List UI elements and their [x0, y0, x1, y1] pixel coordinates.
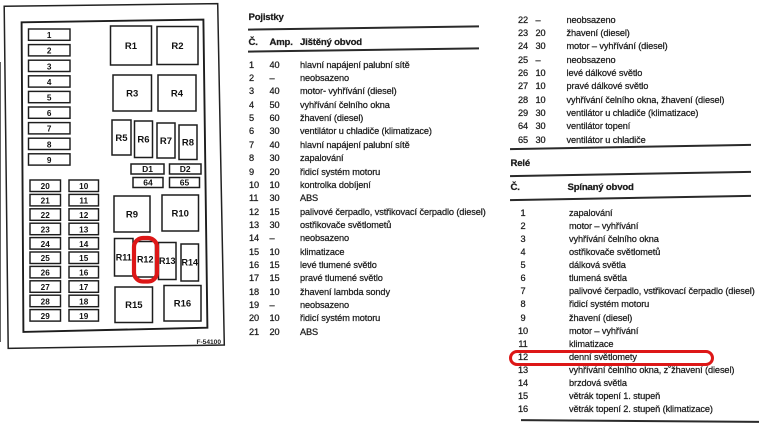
svg-text:23: 23	[41, 225, 51, 234]
svg-text:R10: R10	[171, 208, 188, 219]
svg-text:R14: R14	[182, 258, 199, 268]
svg-text:D1: D1	[142, 164, 153, 174]
svg-text:22: 22	[41, 211, 51, 220]
svg-text:27: 27	[41, 283, 51, 292]
svg-text:F-54100: F-54100	[196, 339, 221, 346]
svg-text:29: 29	[41, 312, 51, 321]
svg-text:7: 7	[47, 125, 52, 134]
svg-text:11: 11	[79, 197, 88, 206]
svg-text:3: 3	[47, 62, 52, 71]
svg-text:R2: R2	[171, 41, 183, 52]
svg-text:18: 18	[79, 297, 89, 306]
svg-text:8: 8	[47, 140, 52, 149]
svg-text:R8: R8	[182, 138, 194, 149]
svg-text:26: 26	[41, 269, 51, 278]
svg-text:R15: R15	[125, 300, 143, 311]
svg-text:28: 28	[41, 297, 51, 306]
svg-text:R7: R7	[160, 136, 172, 147]
svg-text:13: 13	[79, 225, 89, 234]
svg-text:4: 4	[47, 78, 52, 87]
svg-text:R4: R4	[171, 88, 184, 99]
svg-text:20: 20	[41, 182, 51, 191]
svg-text:25: 25	[41, 254, 51, 263]
svg-text:9: 9	[47, 156, 52, 165]
svg-text:R9: R9	[126, 209, 138, 220]
svg-text:64: 64	[143, 178, 153, 188]
svg-text:24: 24	[41, 240, 51, 249]
svg-text:65: 65	[180, 178, 190, 188]
svg-text:R11: R11	[116, 253, 132, 263]
svg-text:15: 15	[79, 254, 89, 263]
svg-text:R16: R16	[174, 299, 191, 310]
svg-text:16: 16	[79, 269, 89, 278]
svg-text:14: 14	[79, 240, 89, 249]
svg-text:R5: R5	[115, 133, 128, 144]
svg-text:D2: D2	[180, 164, 191, 174]
svg-text:17: 17	[79, 283, 89, 292]
svg-text:R3: R3	[126, 88, 138, 99]
svg-text:6: 6	[47, 109, 52, 118]
svg-text:19: 19	[79, 312, 89, 321]
svg-text:10: 10	[79, 182, 89, 191]
svg-text:R13: R13	[159, 256, 176, 266]
svg-text:R1: R1	[125, 41, 138, 52]
svg-text:R12: R12	[137, 255, 154, 265]
svg-text:12: 12	[79, 211, 89, 220]
svg-text:5: 5	[47, 94, 52, 103]
svg-text:1: 1	[47, 31, 52, 40]
svg-text:R6: R6	[137, 135, 149, 146]
svg-text:21: 21	[41, 197, 51, 206]
svg-text:2: 2	[47, 47, 52, 56]
